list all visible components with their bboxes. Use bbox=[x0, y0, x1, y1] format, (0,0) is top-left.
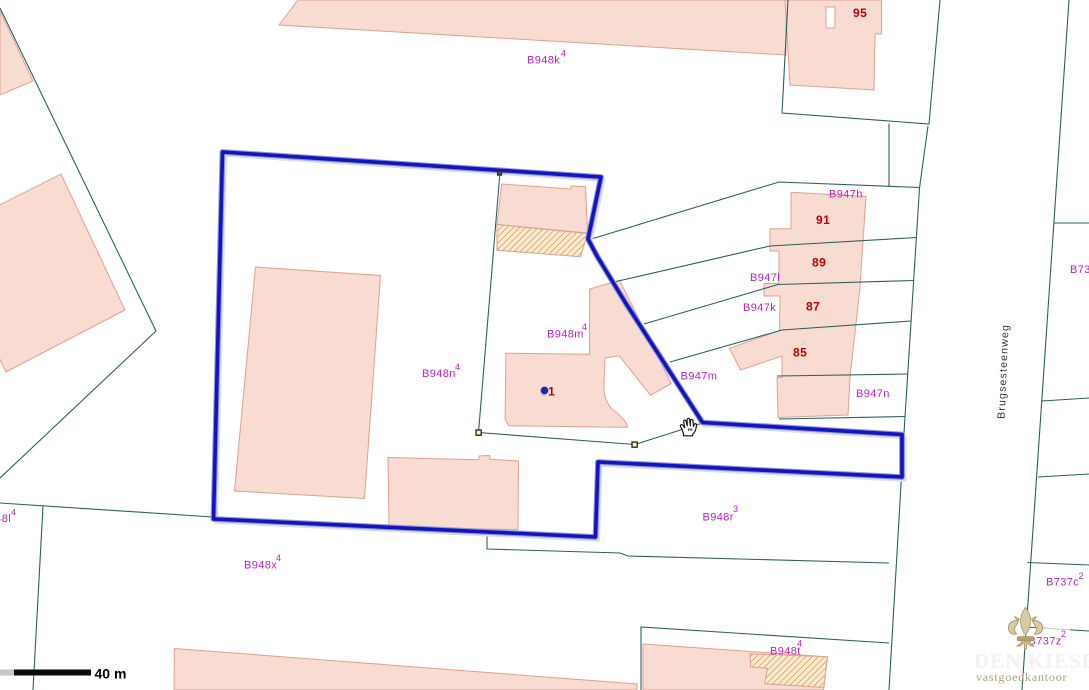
svg-text:B947l: B947l bbox=[750, 272, 780, 284]
svg-text:87: 87 bbox=[806, 300, 820, 314]
svg-text:85: 85 bbox=[793, 346, 807, 360]
svg-text:B948k: B948k bbox=[527, 55, 560, 67]
svg-text:B737c: B737c bbox=[1046, 577, 1079, 589]
svg-text:vastgoedkantoor: vastgoedkantoor bbox=[976, 670, 1067, 684]
svg-text:91: 91 bbox=[816, 213, 830, 227]
svg-text:4: 4 bbox=[797, 639, 802, 649]
svg-text:4: 4 bbox=[276, 553, 281, 563]
svg-text:B948m: B948m bbox=[547, 329, 584, 341]
svg-text:B948n: B948n bbox=[422, 368, 456, 380]
svg-text:B947k: B947k bbox=[743, 302, 776, 314]
svg-text:B947m: B947m bbox=[681, 371, 718, 383]
svg-text:B737c: B737c bbox=[1070, 264, 1089, 276]
svg-text:95: 95 bbox=[853, 6, 867, 20]
svg-text:4: 4 bbox=[561, 49, 566, 59]
svg-text:2: 2 bbox=[1061, 629, 1066, 639]
svg-text:89: 89 bbox=[812, 256, 826, 270]
svg-text:B947h: B947h bbox=[829, 189, 863, 201]
svg-text:4: 4 bbox=[455, 362, 460, 372]
svg-text:B947n: B947n bbox=[856, 388, 890, 400]
svg-text:2: 2 bbox=[1079, 571, 1084, 581]
svg-text:B948x: B948x bbox=[244, 560, 277, 572]
svg-text:4: 4 bbox=[11, 508, 16, 518]
svg-text:3: 3 bbox=[733, 504, 738, 514]
svg-text:40 m: 40 m bbox=[95, 666, 127, 682]
svg-text:4: 4 bbox=[582, 322, 587, 332]
svg-text:B948l: B948l bbox=[0, 513, 11, 525]
svg-text:B948r: B948r bbox=[703, 512, 734, 524]
